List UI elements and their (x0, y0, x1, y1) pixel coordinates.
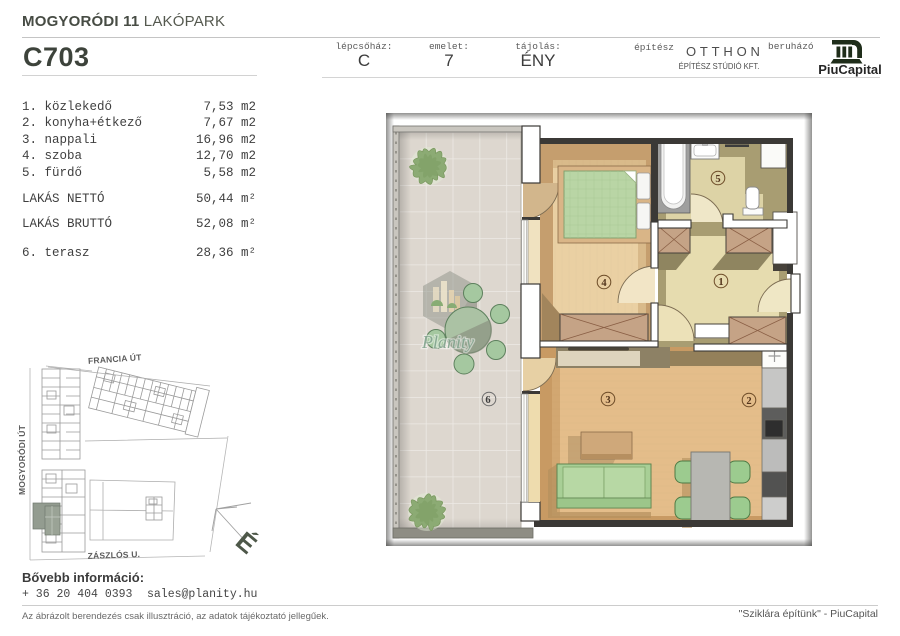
svg-text:FRANCIA ÚT: FRANCIA ÚT (88, 351, 143, 366)
svg-text:É: É (230, 526, 263, 560)
svg-text:ZÁSZLÓS U.: ZÁSZLÓS U. (87, 548, 140, 561)
svg-text:MOGYORÓDI ÚT: MOGYORÓDI ÚT (16, 424, 27, 495)
